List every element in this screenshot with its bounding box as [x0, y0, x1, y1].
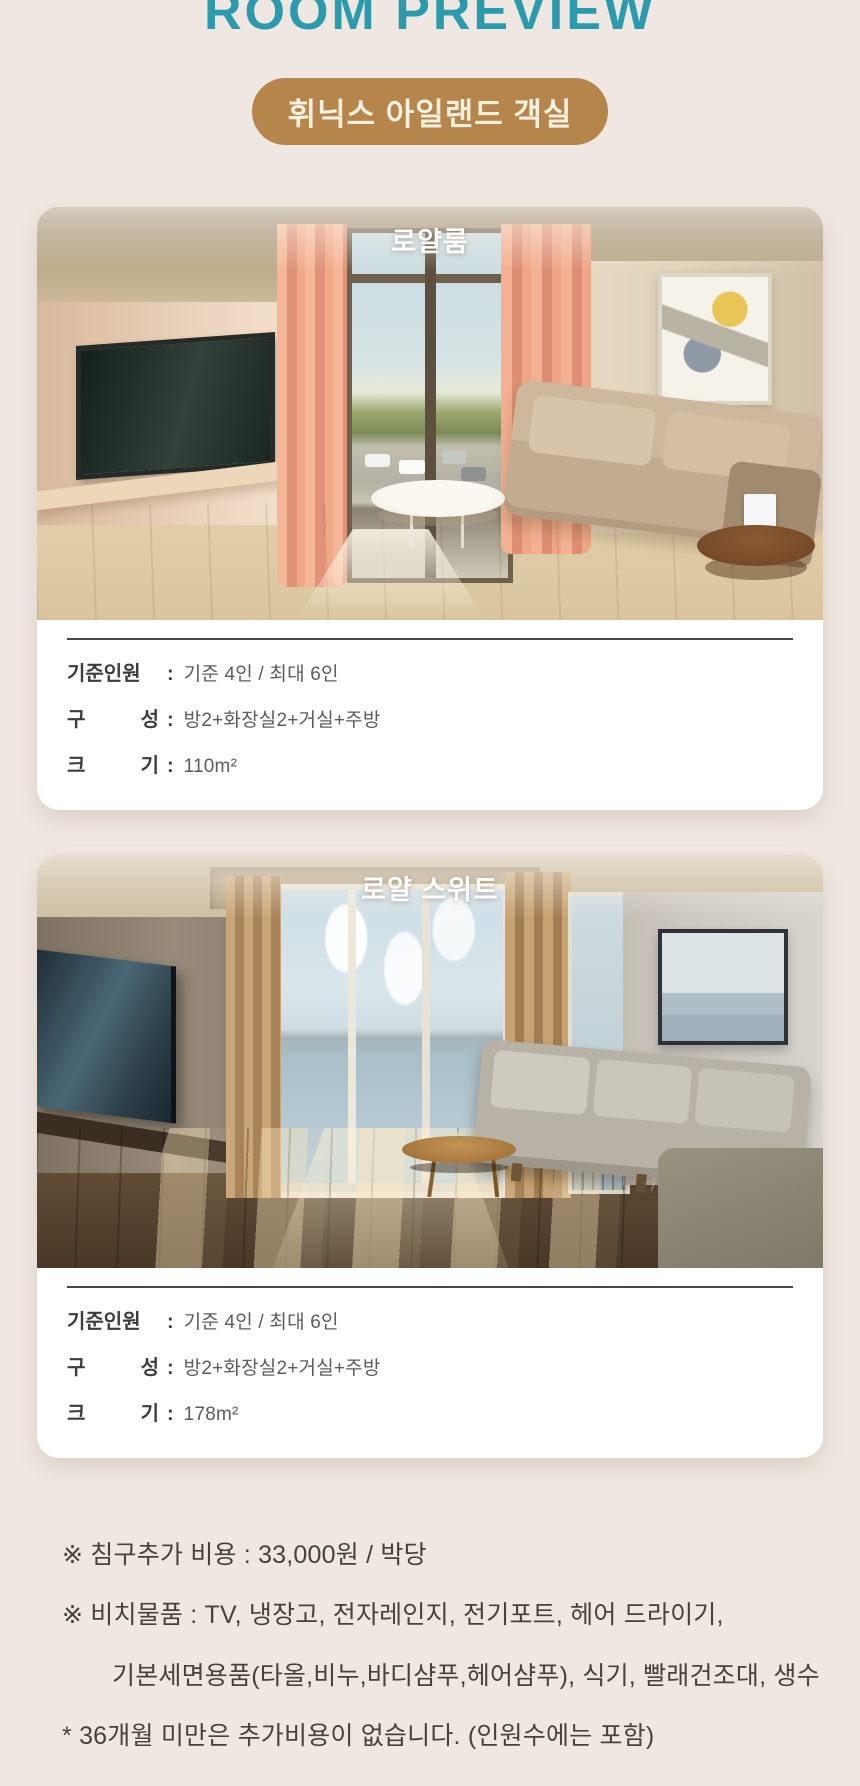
info-label: 크 기	[67, 1397, 159, 1426]
brochure-stand-shape	[744, 494, 775, 529]
room-info-panel: 기준인원 : 기준 4인 / 최대 6인 구 성 : 방2+화장실2+거실+주방…	[37, 620, 823, 810]
note-amenities-line2: 기본세면용품(타올,비누,바디샴푸,헤어샴푸), 식기, 빨래건조대, 생수	[62, 1661, 820, 1692]
tv-screen-shape	[37, 950, 176, 1124]
info-label: 크 기	[67, 749, 159, 778]
sofa-cushion-shape	[528, 395, 657, 467]
tv-screen-shape	[76, 332, 275, 480]
armchair-shape	[658, 1148, 823, 1268]
info-row-composition: 구 성 : 방2+화장실2+거실+주방	[67, 1351, 793, 1380]
room-photo-title: 로얄 스위트	[37, 868, 823, 907]
coffee-table-leg-shape	[410, 511, 413, 548]
info-value: 178m²	[184, 1404, 239, 1426]
info-colon: :	[167, 709, 174, 732]
parked-car-shape	[461, 467, 486, 481]
sofa-cushion-shape	[491, 1050, 591, 1115]
info-divider	[67, 1286, 793, 1288]
info-label: 기준인원	[67, 1305, 159, 1334]
sofa-leg-shape	[636, 1174, 647, 1192]
side-table-shape	[697, 525, 815, 566]
resort-name-badge: 휘닉스 아일랜드 객실	[252, 78, 609, 145]
room-preview-page: ROOM PREVIEW 휘닉스 아일랜드 객실	[0, 0, 860, 1786]
footnotes: ※ 침구추가 비용 : 33,000원 / 박당 ※ 비치물품 : TV, 냉장…	[62, 1540, 820, 1752]
info-row-size: 크 기 : 178m²	[67, 1397, 793, 1426]
info-row-composition: 구 성 : 방2+화장실2+거실+주방	[67, 703, 793, 732]
note-bedding-fee: ※ 침구추가 비용 : 33,000원 / 박당	[62, 1540, 820, 1571]
info-row-size: 크 기 : 110m²	[67, 749, 793, 778]
parked-car-shape	[365, 454, 390, 468]
info-colon: :	[167, 755, 174, 778]
room-photo-title: 로얄룸	[37, 220, 823, 259]
info-label: 구 성	[67, 703, 159, 732]
info-divider	[67, 638, 793, 640]
info-row-capacity: 기준인원 : 기준 4인 / 최대 6인	[67, 1305, 793, 1334]
room-card-royal-room: 로얄룸 기준인원 : 기준 4인 / 최대 6인 구 성 : 방2+화장실2+거…	[37, 207, 823, 810]
wall-art-shape	[658, 273, 772, 405]
info-value: 방2+화장실2+거실+주방	[184, 705, 381, 732]
info-value: 방2+화장실2+거실+주방	[184, 1353, 381, 1380]
coffee-table-shape	[371, 480, 505, 517]
note-amenities-line1: ※ 비치물품 : TV, 냉장고, 전자레인지, 전기포트, 헤어 드라이기,	[62, 1600, 820, 1631]
room-card-royal-suite: 로얄 스위트 기준인원 : 기준 4인 / 최대 6인 구 성 : 방2+화장실…	[37, 855, 823, 1458]
info-label: 기준인원	[67, 657, 159, 686]
page-title: ROOM PREVIEW	[0, 0, 860, 38]
info-colon: :	[167, 1311, 174, 1334]
info-row-capacity: 기준인원 : 기준 4인 / 최대 6인	[67, 657, 793, 686]
sofa-leg-shape	[511, 1163, 522, 1181]
info-value: 기준 4인 / 최대 6인	[184, 659, 339, 686]
info-label: 구 성	[67, 1351, 159, 1380]
info-colon: :	[167, 663, 174, 686]
info-colon: :	[167, 1403, 174, 1426]
parked-car-shape	[399, 460, 425, 474]
info-colon: :	[167, 1357, 174, 1380]
coffee-table-shape	[402, 1136, 516, 1163]
wall-art-shape	[658, 929, 788, 1044]
coffee-table-leg-shape	[461, 511, 464, 548]
note-infant-policy: * 36개월 미만은 추가비용이 없습니다. (인원수에는 포함)	[62, 1721, 820, 1752]
info-value: 기준 4인 / 최대 6인	[184, 1307, 339, 1334]
info-value: 110m²	[184, 756, 237, 778]
royal-suite-photo: 로얄 스위트	[37, 855, 823, 1268]
sofa-cushion-shape	[592, 1059, 692, 1124]
royal-room-photo: 로얄룸	[37, 207, 823, 620]
room-info-panel: 기준인원 : 기준 4인 / 최대 6인 구 성 : 방2+화장실2+거실+주방…	[37, 1268, 823, 1458]
sofa-cushion-shape	[694, 1068, 794, 1133]
parked-car-shape	[442, 450, 465, 464]
